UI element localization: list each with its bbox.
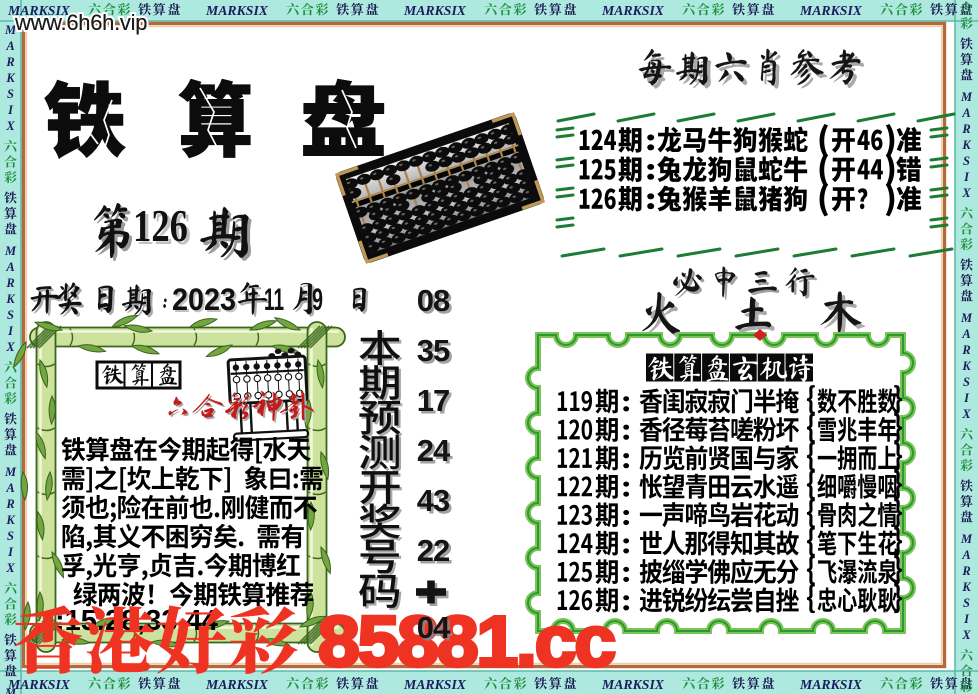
svg-text:www.6h6h.vip: www.6h6h.vip: [14, 10, 147, 35]
svg-text:R: R: [961, 122, 970, 136]
svg-text:9: 9: [312, 281, 323, 317]
svg-text:R: R: [5, 55, 14, 69]
svg-text:126: 126: [133, 200, 188, 251]
svg-text:S: S: [963, 154, 970, 168]
svg-text:MARKSIX: MARKSIX: [799, 3, 863, 18]
svg-text:MARKSIX: MARKSIX: [403, 3, 467, 18]
svg-text:M: M: [960, 311, 973, 325]
svg-text:S: S: [7, 87, 14, 101]
svg-text:X: X: [5, 119, 15, 133]
svg-text:X: X: [5, 340, 15, 354]
svg-text:R: R: [961, 343, 970, 357]
svg-text:24: 24: [417, 433, 451, 468]
svg-text:08: 08: [417, 283, 450, 318]
svg-text:MARKSIX: MARKSIX: [205, 3, 269, 18]
svg-text:S: S: [7, 529, 14, 543]
svg-text:X: X: [961, 628, 971, 642]
svg-text:X: X: [961, 407, 971, 421]
svg-text:MARKSIX: MARKSIX: [601, 3, 665, 18]
svg-text:A: A: [5, 260, 14, 274]
svg-text:S: S: [963, 596, 970, 610]
svg-text:R: R: [961, 564, 970, 578]
svg-text:M: M: [4, 465, 17, 479]
svg-text:A: A: [961, 548, 970, 562]
svg-text:MARKSIX: MARKSIX: [205, 677, 269, 692]
svg-text:04: 04: [417, 610, 451, 645]
svg-text:X: X: [5, 561, 15, 575]
svg-text:35: 35: [417, 333, 450, 368]
svg-text:S: S: [7, 308, 14, 322]
svg-text:R: R: [5, 276, 14, 290]
svg-text:M: M: [960, 90, 973, 104]
svg-text:A: A: [961, 327, 970, 341]
svg-text:S: S: [963, 375, 970, 389]
svg-text:MARKSIX: MARKSIX: [7, 677, 71, 692]
svg-text:X: X: [961, 186, 971, 200]
svg-text:M: M: [960, 532, 973, 546]
svg-text:43: 43: [417, 483, 450, 518]
svg-text:22: 22: [417, 533, 449, 568]
svg-text:M: M: [4, 686, 17, 694]
svg-text:R: R: [5, 497, 14, 511]
svg-text:A: A: [5, 481, 14, 495]
svg-text:85881.cc: 85881.cc: [318, 603, 615, 682]
svg-text:17: 17: [417, 383, 449, 418]
svg-text:A: A: [5, 39, 14, 53]
svg-text:A: A: [961, 106, 970, 120]
svg-text:MARKSIX: MARKSIX: [799, 677, 863, 692]
svg-text:2023: 2023: [172, 281, 236, 317]
svg-text:11: 11: [264, 281, 284, 317]
svg-text:M: M: [4, 244, 17, 258]
